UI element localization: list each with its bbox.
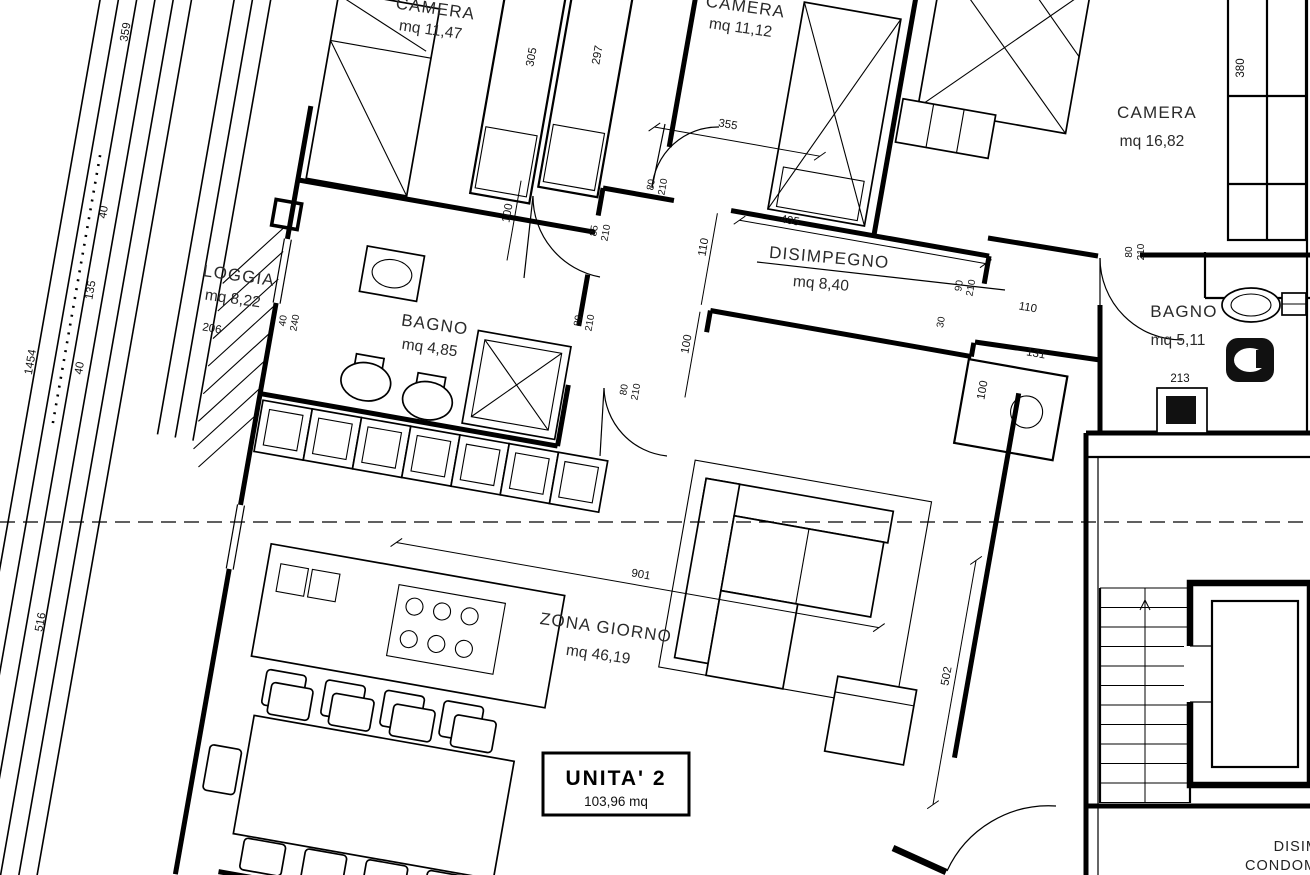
common-area-label-2: CONDOMINIALE xyxy=(1245,858,1310,874)
apartment-wing xyxy=(0,0,1141,875)
room-label-disimpegno: DISIMPEGNO xyxy=(768,243,890,272)
dim-405: 405 xyxy=(779,213,800,228)
dim-135: 135 xyxy=(83,280,98,301)
chair-icon xyxy=(328,693,375,732)
svg-text:210: 210 xyxy=(657,177,671,196)
dim-40a: 40 xyxy=(97,205,111,220)
elevator-shaft xyxy=(1184,583,1310,785)
chair-icon xyxy=(239,838,286,875)
dim-110b: 110 xyxy=(1018,300,1038,315)
door-spec-1: 80 210 xyxy=(645,175,671,196)
floor-plan-page: UNITA' 2 103,96 mq CAMERA mq 11,47 CAMER… xyxy=(0,0,1310,875)
svg-text:85: 85 xyxy=(588,224,601,237)
chair-icon xyxy=(202,744,242,795)
room-label-zona-giorno: ZONA GIORNO xyxy=(539,609,674,646)
dim-40b: 40 xyxy=(73,361,87,376)
dim-30: 30 xyxy=(935,315,948,328)
dim-213: 213 xyxy=(1170,373,1189,385)
room-label-bagno1: BAGNO xyxy=(400,311,469,339)
svg-text:80: 80 xyxy=(618,383,631,396)
svg-text:90: 90 xyxy=(953,279,966,292)
room-area-camera3: mq 16,82 xyxy=(1120,133,1185,150)
door-arc-bagno2 xyxy=(1100,258,1182,340)
dining-table xyxy=(190,673,520,875)
svg-text:40: 40 xyxy=(277,314,290,327)
room-label-camera3: CAMERA xyxy=(1117,103,1197,122)
dim-40-240: 40 240 xyxy=(277,311,303,332)
dim-100b: 100 xyxy=(679,334,694,355)
dim-359: 359 xyxy=(118,22,133,43)
unit-area: 103,96 mq xyxy=(584,794,648,809)
door-spec-4: 80 210 xyxy=(618,380,644,401)
common-area-label-1: DISIMPEGNO xyxy=(1274,839,1310,855)
chair-icon xyxy=(450,714,497,753)
chair-icon xyxy=(389,704,436,743)
room-label-loggia: LOGGIA xyxy=(202,261,276,290)
chair-icon xyxy=(267,682,314,721)
svg-text:80: 80 xyxy=(572,314,585,327)
svg-text:80: 80 xyxy=(1124,246,1135,258)
room-area-loggia: mq 8,22 xyxy=(204,287,262,312)
armchair-icon xyxy=(825,676,917,765)
dim-305: 305 xyxy=(524,47,539,68)
room-area-bagno2: mq 5,11 xyxy=(1151,332,1206,349)
svg-text:210: 210 xyxy=(584,313,598,332)
dim-206: 206 xyxy=(201,321,222,336)
door-spec-5: 90 210 xyxy=(953,276,979,297)
dim-901: 901 xyxy=(630,567,651,582)
dim-131: 131 xyxy=(1025,346,1046,361)
staircase xyxy=(1100,588,1190,803)
wardrobe-grid-camera3 xyxy=(1228,0,1306,240)
unit-label-box: UNITA' 2 103,96 mq xyxy=(543,753,689,815)
svg-text:80: 80 xyxy=(645,178,658,191)
dim-297: 297 xyxy=(590,45,605,66)
room-area-bagno1: mq 4,85 xyxy=(401,336,459,361)
svg-text:240: 240 xyxy=(289,313,303,332)
sofa-group xyxy=(649,460,949,765)
toilet-icon xyxy=(338,359,394,405)
dim-100c: 100 xyxy=(975,380,990,401)
svg-text:210: 210 xyxy=(1136,243,1147,260)
room-area-disimpegno: mq 8,40 xyxy=(792,273,850,295)
bidet-icon xyxy=(400,378,456,424)
room-label-bagno2: BAGNO xyxy=(1150,302,1217,321)
loggia-pillar xyxy=(272,199,302,229)
door-spec-6: 80 210 xyxy=(1124,243,1147,260)
dim-502: 502 xyxy=(939,666,954,687)
wardrobe-camera1 xyxy=(470,0,649,215)
room-area-zona-giorno: mq 46,19 xyxy=(565,642,631,668)
svg-text:210: 210 xyxy=(630,382,644,401)
svg-text:210: 210 xyxy=(965,278,979,297)
svg-text:210: 210 xyxy=(600,223,614,242)
dim-516: 516 xyxy=(33,612,48,633)
sink-icon xyxy=(359,246,424,301)
unit-title: UNITA' 2 xyxy=(565,767,666,790)
door-spec-2: 85 210 xyxy=(588,221,614,242)
room-area-camera2: mq 11,12 xyxy=(708,15,773,41)
dim-110a: 110 xyxy=(696,237,711,257)
floor-plan-canvas: UNITA' 2 103,96 mq CAMERA mq 11,47 CAMER… xyxy=(0,0,1310,875)
door-spec-3: 80 210 xyxy=(572,311,598,332)
dim-1454: 1454 xyxy=(23,348,39,376)
dim-380: 380 xyxy=(1235,58,1247,77)
dim-355: 355 xyxy=(717,117,738,132)
dim-100a: 100 xyxy=(500,203,515,224)
door-arc-entrance xyxy=(947,806,1056,871)
